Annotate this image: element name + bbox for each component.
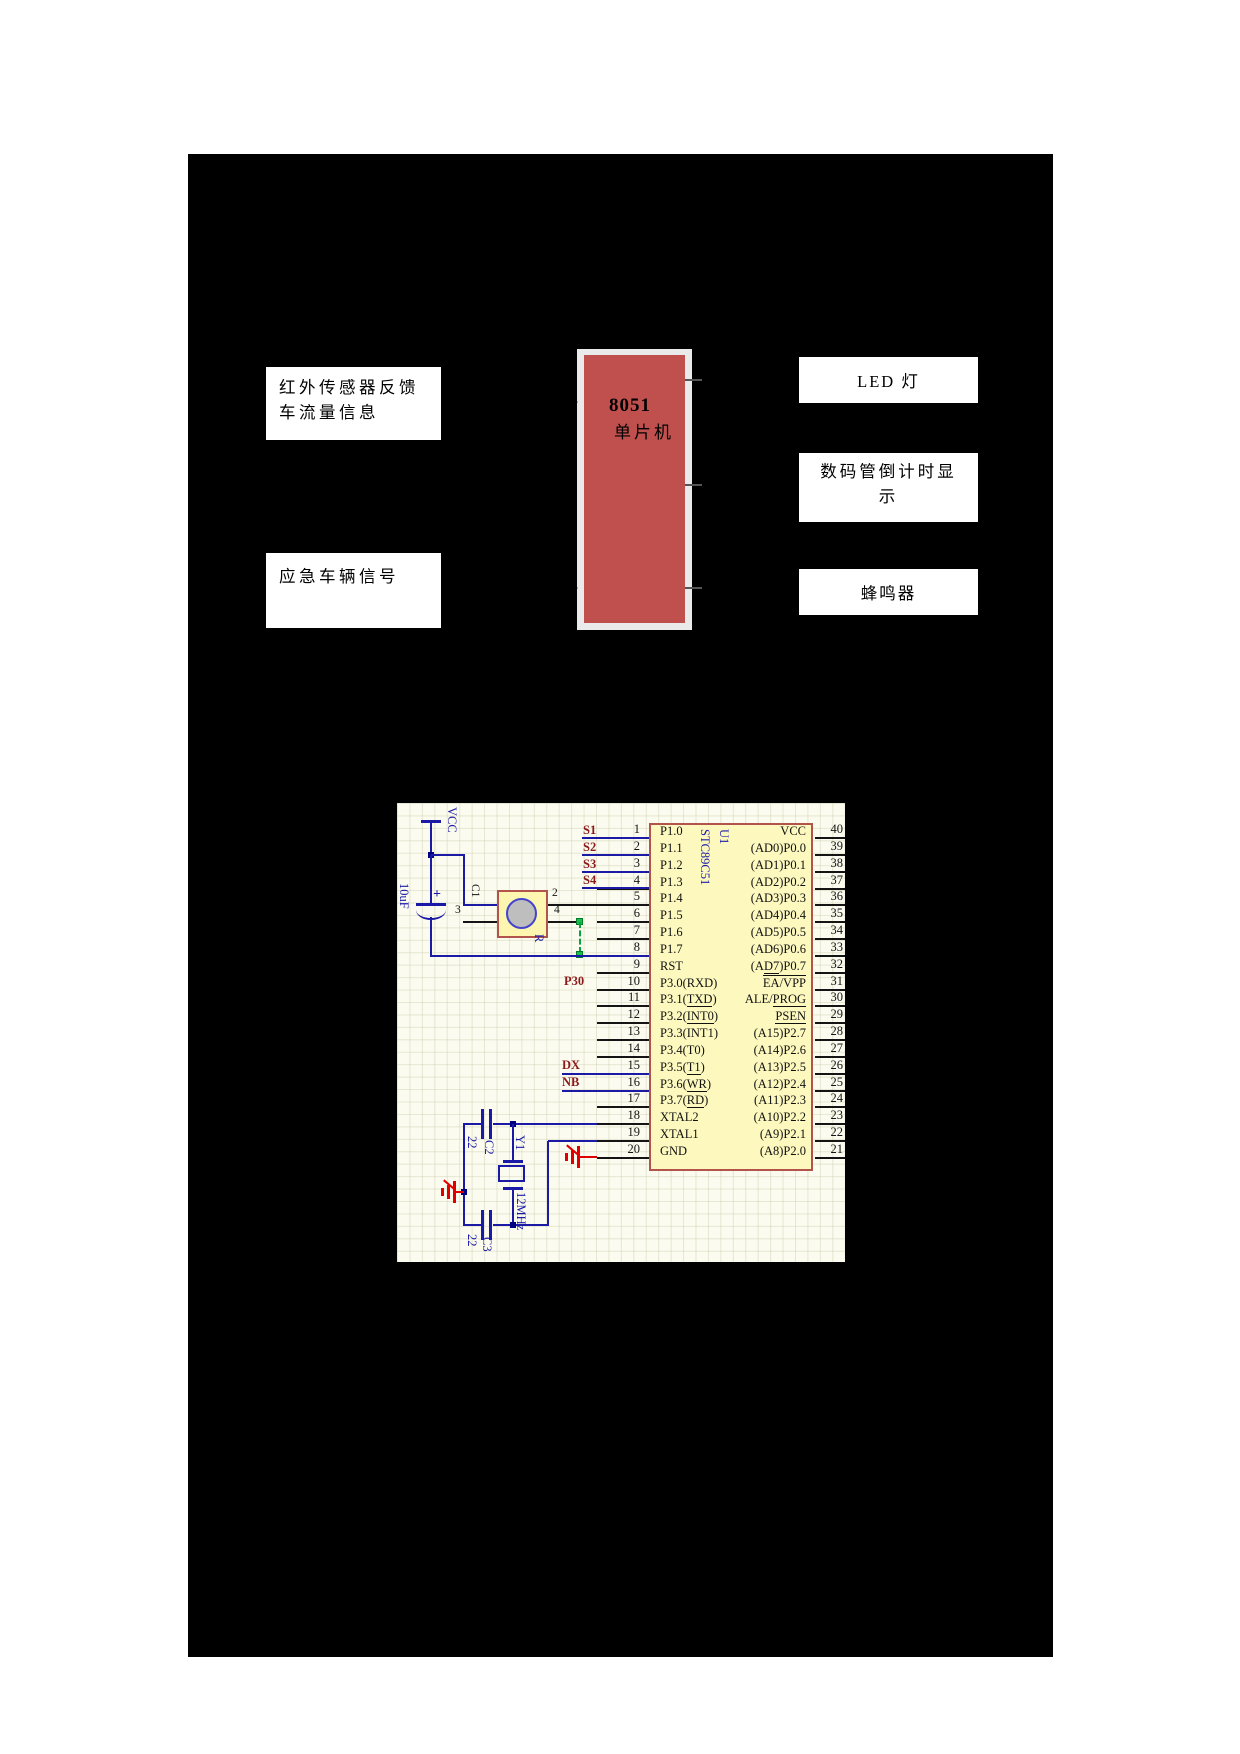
- pin-function-text: GND: [660, 1144, 687, 1158]
- xtal-ref: Y1: [513, 1135, 527, 1163]
- wire: [431, 854, 465, 856]
- pin-number-right: 33: [811, 940, 843, 954]
- pin-number-right: 21: [811, 1142, 843, 1156]
- wire: [430, 917, 432, 956]
- crystal-symbol: [498, 1165, 525, 1182]
- pin-number-right: 38: [811, 856, 843, 870]
- cap2-plate: [489, 1109, 492, 1139]
- net-label-s3: S3: [583, 857, 596, 872]
- pin-function-text: VCC: [780, 824, 806, 838]
- chip-label-left: P1.7: [660, 941, 683, 957]
- chip-label-left: P1.6: [660, 924, 683, 940]
- wire: [463, 1123, 483, 1125]
- pin-number-right: 28: [811, 1024, 843, 1038]
- pin-number-left: 5: [610, 889, 640, 903]
- pin-function-text: P1.3: [660, 875, 683, 889]
- pin-function-text: D7: [764, 959, 779, 974]
- wire: [430, 955, 649, 957]
- pin-number-left: 9: [610, 957, 640, 971]
- document-page: 红外传感器反馈 车流量信息 应急车辆信号 8051 单片机 LED 灯 数码管倒…: [0, 0, 1240, 1754]
- chip-label-right: VCC: [691, 823, 806, 839]
- ground-symbol: [455, 1191, 464, 1193]
- pin-number-left: 16: [610, 1075, 640, 1089]
- pin-function-text: (A12)P2.4: [754, 1077, 806, 1091]
- pin-number-right: 31: [811, 974, 843, 988]
- net-label-p30: P30: [564, 974, 584, 989]
- pin-number-right: 39: [811, 839, 843, 853]
- ground-symbol: [441, 1188, 444, 1196]
- pin-line-left: [597, 1157, 649, 1159]
- block-infrared-sensor: 红外传感器反馈 车流量信息: [264, 365, 443, 442]
- pin-number-right: 40: [811, 822, 843, 836]
- chip-label-right: (AD6)P0.6: [691, 941, 806, 957]
- wire: [548, 1140, 597, 1142]
- pin-function-text: P1.5: [660, 908, 683, 922]
- block-infrared-label: 红外传感器反馈 车流量信息: [266, 367, 441, 425]
- pin-function-text: P1.4: [660, 891, 683, 905]
- cap2-plate: [481, 1109, 484, 1139]
- wire: [562, 1090, 649, 1092]
- block-mcu-title: 8051: [609, 395, 651, 417]
- pin-number-left: 2: [610, 839, 640, 853]
- chip-label-right: (AD5)P0.5: [691, 924, 806, 940]
- connector-mcu-to-led: [685, 379, 702, 381]
- pin-function-text: P3.2(: [660, 1009, 687, 1023]
- chip-label-left: P1.1: [660, 840, 683, 856]
- pin-number-left: 19: [610, 1125, 640, 1139]
- arrow-infrared-to-mcu: [568, 397, 578, 407]
- wire: [493, 1123, 597, 1125]
- ground-symbol: [565, 1153, 568, 1161]
- cap3-plate: [489, 1210, 492, 1240]
- block-buzzer-label: 蜂鸣器: [861, 580, 917, 604]
- cap1-value: 10uF: [397, 883, 411, 931]
- pin-function-text: (AD1)P0.1: [751, 858, 806, 872]
- pin-number-right: 22: [811, 1125, 843, 1139]
- pin-number-right: 23: [811, 1108, 843, 1122]
- block-emergency-signal: 应急车辆信号: [264, 551, 443, 630]
- pin-number-left: 4: [610, 873, 640, 887]
- net-label-s4: S4: [583, 873, 596, 888]
- net-label-s2: S2: [583, 840, 596, 855]
- pin-function-text: PSEN: [775, 1009, 806, 1024]
- pin-function-text: P3.7(: [660, 1093, 687, 1107]
- pin-number-left: 10: [610, 974, 640, 988]
- wire: [463, 1224, 483, 1226]
- chip-label-right: (A12)P2.4: [691, 1076, 806, 1092]
- pin-number-right: 36: [811, 889, 843, 903]
- cap3-ref: C3: [480, 1237, 494, 1263]
- ground-symbol: [453, 1181, 456, 1203]
- pin-number-left: 1: [610, 822, 640, 836]
- block-buzzer: 蜂鸣器: [797, 567, 980, 617]
- ground-symbol: [447, 1185, 450, 1199]
- wire: [430, 855, 432, 905]
- circuit-schematic: U1 STC89C51 140P1.0VCC239P1.1(AD0)P0.033…: [397, 803, 845, 1262]
- chip-label-right: (A13)P2.5: [691, 1059, 806, 1075]
- connector-mcu-to-display: [685, 484, 702, 486]
- pin-function-text: (AD0)P0.0: [751, 841, 806, 855]
- pin-function-text: (A9)P2.1: [760, 1127, 806, 1141]
- vcc-label: VCC: [445, 807, 459, 853]
- wire: [430, 822, 432, 855]
- block-emergency-label: 应急车辆信号: [266, 553, 441, 589]
- block-mcu: 8051 单片机: [584, 355, 685, 623]
- pin-number-right: 24: [811, 1091, 843, 1105]
- green-dashed-wire: [579, 922, 581, 953]
- chip-label-left: P1.0: [660, 823, 683, 839]
- pin-function-text: P3.6(: [660, 1077, 687, 1091]
- block-led-label: LED 灯: [857, 368, 920, 392]
- pin-number-left: 8: [610, 940, 640, 954]
- pin-function-text: P1.0: [660, 824, 683, 838]
- pin-number-right: 29: [811, 1007, 843, 1021]
- pin-number-left: 17: [610, 1091, 640, 1105]
- pin-number-right: 25: [811, 1075, 843, 1089]
- cap1-ref: C1: [468, 884, 482, 912]
- pin-function-text: P1.7: [660, 942, 683, 956]
- chip-label-left: RST: [660, 958, 683, 974]
- net-label-nb: NB: [562, 1075, 579, 1090]
- block-led: LED 灯: [797, 355, 980, 405]
- pin-number-right: 35: [811, 906, 843, 920]
- wire: [463, 921, 497, 923]
- wire: [547, 1141, 549, 1226]
- block-7seg-line2: 示: [799, 484, 978, 509]
- chip-label-right: (A8)P2.0: [691, 1143, 806, 1159]
- pin-function-text: (A14)P2.6: [754, 1043, 806, 1057]
- cap2-value: 22: [465, 1136, 479, 1164]
- pin-function-text: P1.1: [660, 841, 683, 855]
- connector-mcu-to-buzzer: [685, 587, 702, 589]
- chip-label-right: ALE/PROG: [691, 991, 806, 1007]
- chip-label-left: P1.5: [660, 907, 683, 923]
- pin-function-text: (AD3)P0.3: [751, 891, 806, 905]
- pin-number-left: 6: [610, 906, 640, 920]
- pin-function-text: (AD2)P0.2: [751, 875, 806, 889]
- block-mcu-frame: 8051 单片机: [577, 349, 692, 630]
- chip-label-right: (AD3)P0.3: [691, 890, 806, 906]
- pin-function-text: (A: [751, 959, 764, 973]
- pin-number-left: 14: [610, 1041, 640, 1055]
- chip-label-right: (A14)P2.6: [691, 1042, 806, 1058]
- pin-function-text: (AD4)P0.4: [751, 908, 806, 922]
- pin-function-text: ALE/: [745, 992, 773, 1006]
- pin-function-text: EA/VPP: [763, 975, 806, 990]
- pin-function-text: (A11)P2.3: [754, 1093, 806, 1107]
- pin-function-text: P1.6: [660, 925, 683, 939]
- sensor-pin3: 3: [455, 904, 461, 916]
- chip-label-right: (AD1)P0.1: [691, 857, 806, 873]
- arrow-emergency-to-mcu: [568, 583, 578, 593]
- net-label-dx: DX: [562, 1058, 580, 1073]
- pin-function-text: (AD5)P0.5: [751, 925, 806, 939]
- pin-function-text: (A13)P2.5: [754, 1060, 806, 1074]
- chip-label-right: EA/VPP: [691, 975, 806, 991]
- pin-number-right: 34: [811, 923, 843, 937]
- pin-number-left: 20: [610, 1142, 640, 1156]
- chip-label-right: (A15)P2.7: [691, 1025, 806, 1041]
- sensor-pin4: 4: [554, 904, 560, 916]
- net-label-s1: S1: [583, 823, 596, 838]
- ground-symbol: [577, 1146, 580, 1168]
- wire: [463, 855, 465, 906]
- pin-number-left: 11: [610, 990, 640, 1004]
- chip-label-right: (AD7)P0.7: [691, 958, 806, 974]
- pin-line-right: [815, 1157, 845, 1159]
- chip-label-left: P1.4: [660, 890, 683, 906]
- sensor-pin2: 2: [552, 887, 558, 899]
- chip-label-right: (AD0)P0.0: [691, 840, 806, 856]
- chip-label-left: P1.2: [660, 857, 683, 873]
- pin-function-text: P3.1(: [660, 992, 687, 1006]
- xtal-value: 12MHz: [514, 1192, 528, 1244]
- pin-function-text: P1.2: [660, 858, 683, 872]
- pin-function-text: P3.5(: [660, 1060, 687, 1074]
- pin-number-left: 15: [610, 1058, 640, 1072]
- sensor-component: [497, 890, 548, 938]
- chip-label-right: (AD4)P0.4: [691, 907, 806, 923]
- pin-function-text: (A10)P2.2: [754, 1110, 806, 1124]
- pin-number-left: 13: [610, 1024, 640, 1038]
- pin-number-left: 18: [610, 1108, 640, 1122]
- pin-function-text: (A8)P2.0: [760, 1144, 806, 1158]
- block-7seg-display: 数码管倒计时显 示: [797, 451, 980, 524]
- chip-label-right: (A10)P2.2: [691, 1109, 806, 1125]
- pin-number-right: 27: [811, 1041, 843, 1055]
- sensor-button-circle: [506, 898, 537, 929]
- cap3-plate: [481, 1210, 484, 1240]
- chip-label-left: GND: [660, 1143, 687, 1159]
- cap2-ref: C2: [482, 1140, 496, 1166]
- pin-number-left: 3: [610, 856, 640, 870]
- pin-number-left: 7: [610, 923, 640, 937]
- figure-panel: 红外传感器反馈 车流量信息 应急车辆信号 8051 单片机 LED 灯 数码管倒…: [188, 154, 1053, 1657]
- pin-function-text: (AD6)P0.6: [751, 942, 806, 956]
- pin-number-right: 32: [811, 957, 843, 971]
- cap3-value: 22: [465, 1234, 479, 1262]
- chip-label-right: (A11)P2.3: [691, 1092, 806, 1108]
- chip-label-right: (A9)P2.1: [691, 1126, 806, 1142]
- capacitor-plate: [416, 903, 446, 906]
- ground-symbol: [579, 1156, 597, 1158]
- pin-function-text: RST: [660, 959, 683, 973]
- chip-label-right: (AD2)P0.2: [691, 874, 806, 890]
- chip-label-right: PSEN: [691, 1008, 806, 1024]
- pin-function-text: PROG: [773, 992, 806, 1007]
- pin-number-left: 12: [610, 1007, 640, 1021]
- pin-function-text: )P0.7: [779, 959, 806, 973]
- chip-label-left: P1.3: [660, 874, 683, 890]
- pin-number-right: 26: [811, 1058, 843, 1072]
- pin-number-right: 37: [811, 873, 843, 887]
- block-mcu-subtitle: 单片机: [614, 418, 674, 443]
- cap-polarity-plus: +: [433, 887, 441, 903]
- pin-number-right: 30: [811, 990, 843, 1004]
- pin-function-text: (A15)P2.7: [754, 1026, 806, 1040]
- block-7seg-line1: 数码管倒计时显: [799, 459, 978, 484]
